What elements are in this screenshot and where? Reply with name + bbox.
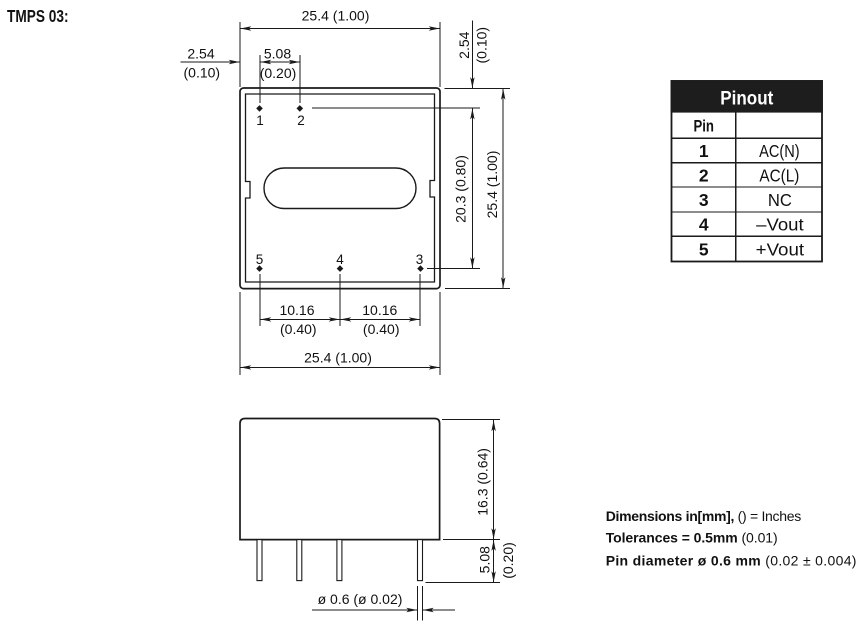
svg-text:Pin diameter ø 0.6 mm (0.02 ±: Pin diameter ø 0.6 mm (0.02 ± 0.004) (606, 553, 857, 569)
svg-text:(0.10): (0.10) (184, 65, 221, 81)
svg-text:4: 4 (699, 215, 709, 235)
svg-text:3: 3 (699, 190, 709, 210)
svg-text:5.08: 5.08 (264, 46, 291, 62)
svg-text:Tolerances = 0.5mm (0.01): Tolerances = 0.5mm (0.01) (606, 530, 778, 546)
svg-text:(0.20): (0.20) (500, 542, 516, 579)
svg-text:16.3 (0.64): 16.3 (0.64) (474, 448, 490, 516)
svg-text:5: 5 (699, 239, 709, 259)
svg-text:20.3 (0.80): 20.3 (0.80) (453, 155, 469, 223)
svg-text:25.4 (1.00): 25.4 (1.00) (304, 350, 372, 366)
svg-text:1: 1 (699, 141, 709, 161)
svg-text:1: 1 (256, 113, 264, 128)
svg-text:TMPS 03:: TMPS 03: (7, 6, 69, 26)
svg-text:–Vout: –Vout (756, 215, 804, 235)
svg-text:25.4 (1.00): 25.4 (1.00) (484, 151, 500, 219)
svg-text:2: 2 (297, 113, 305, 128)
svg-text:Pin: Pin (693, 117, 714, 136)
svg-text:+Vout: +Vout (756, 239, 805, 259)
svg-text:NC: NC (768, 190, 792, 210)
svg-text:ø 0.6 (ø 0.02): ø 0.6 (ø 0.02) (318, 591, 403, 607)
svg-text:25.4 (1.00): 25.4 (1.00) (302, 8, 370, 24)
svg-text:10.16: 10.16 (362, 302, 397, 318)
svg-text:AC(N): AC(N) (759, 141, 800, 161)
svg-text:4: 4 (336, 252, 344, 267)
svg-text:3: 3 (416, 252, 424, 267)
svg-text:AC(L): AC(L) (759, 165, 799, 185)
svg-text:2: 2 (699, 165, 709, 185)
svg-text:Pinout: Pinout (720, 88, 773, 110)
svg-text:2.54: 2.54 (456, 31, 472, 58)
svg-text:2.54: 2.54 (187, 46, 214, 62)
svg-text:(0.40): (0.40) (280, 321, 317, 337)
svg-text:5: 5 (256, 252, 264, 267)
svg-text:(0.40): (0.40) (363, 321, 400, 337)
svg-text:(0.10): (0.10) (473, 27, 489, 64)
svg-text:5.08: 5.08 (476, 546, 492, 573)
svg-text:Dimensions in[mm], () = Inches: Dimensions in[mm], () = Inches (606, 508, 802, 524)
svg-text:(0.20): (0.20) (260, 65, 297, 81)
svg-text:10.16: 10.16 (279, 302, 314, 318)
